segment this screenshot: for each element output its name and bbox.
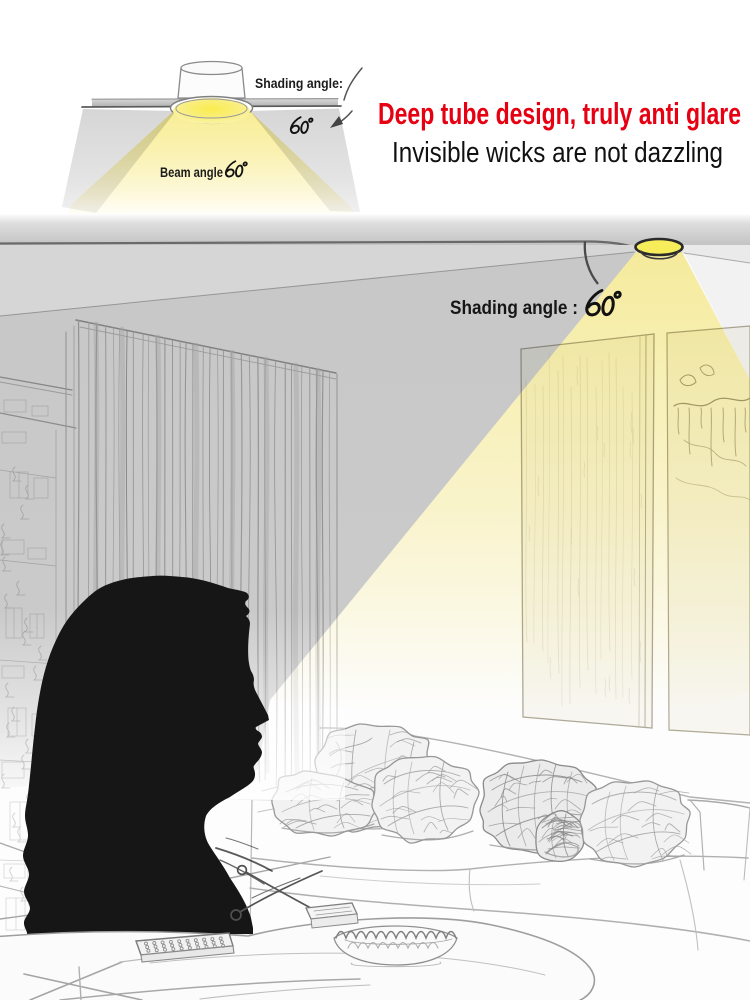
svg-text:Shading angle:: Shading angle: [255,76,343,91]
svg-text:Beam angle: Beam angle [160,165,223,180]
svg-text:Invisible wicks are not dazzli: Invisible wicks are not dazzling [392,137,723,169]
svg-text:Shading angle :: Shading angle : [450,298,578,319]
svg-text:Deep tube design, truly anti g: Deep tube design, truly anti glare [378,96,741,131]
